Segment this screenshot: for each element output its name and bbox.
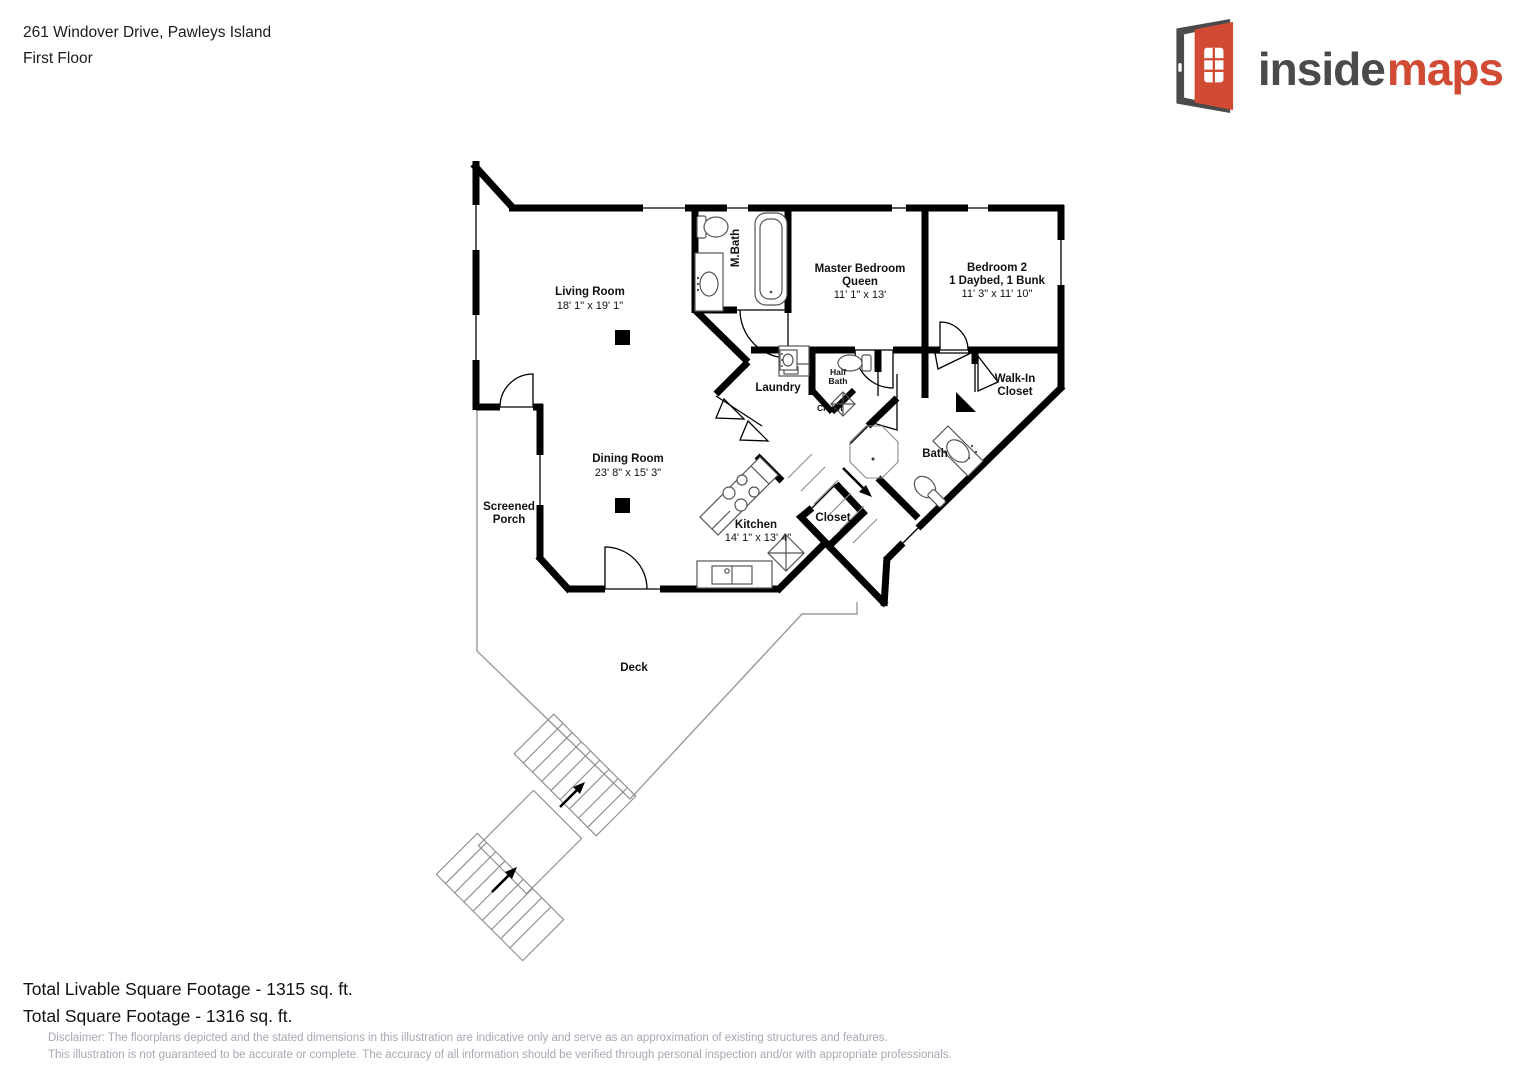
label-dining-dims: 23' 8" x 15' 3" — [595, 467, 662, 479]
floorplan-drawing: Living Room 18' 1" x 19' 1" Dining Room … — [0, 0, 1527, 1080]
label-master-sub: Queen — [842, 276, 878, 288]
total-sqft: Total Square Footage - 1316 sq. ft. — [23, 1003, 353, 1030]
label-walkin-1: Walk-In — [995, 373, 1035, 385]
label-closet-hall: Closet — [817, 403, 843, 413]
disclaimer-line-2: This illustration is not guaranteed to b… — [48, 1047, 952, 1064]
footer-totals: Total Livable Square Footage - 1315 sq. … — [23, 976, 353, 1029]
label-bedroom2: Bedroom 2 — [967, 262, 1027, 274]
label-living-dims: 18' 1" x 19' 1" — [557, 300, 624, 312]
label-kitchen: Kitchen — [735, 519, 777, 531]
label-dining-room: Dining Room — [592, 453, 664, 465]
label-bedroom2-dims: 11' 3" x 11' 10" — [962, 288, 1033, 300]
label-porch-2: Porch — [493, 514, 526, 526]
label-deck: Deck — [620, 662, 648, 674]
livable-sqft: Total Livable Square Footage - 1315 sq. … — [23, 976, 353, 1003]
label-master-dims: 11' 1" x 13' — [834, 289, 887, 301]
deck-stairs — [436, 714, 635, 960]
label-porch-1: Screened — [483, 501, 535, 513]
label-closet-kitchen: Closet — [815, 512, 850, 524]
label-master-bedroom: Master Bedroom — [815, 263, 906, 275]
disclaimer-line-1: Disclaimer: The floorplans depicted and … — [48, 1030, 952, 1047]
label-walkin-2: Closet — [997, 386, 1032, 398]
label-laundry: Laundry — [755, 382, 801, 394]
stairs-up-arrow-1 — [560, 782, 585, 807]
floorplan-page: 261 Windover Drive, Pawleys Island First… — [0, 0, 1527, 1080]
label-kitchen-dims: 14' 1" x 13' 4" — [725, 532, 792, 544]
disclaimer: Disclaimer: The floorplans depicted and … — [48, 1030, 952, 1063]
label-mbath: M.Bath — [730, 229, 742, 267]
label-living-room: Living Room — [555, 286, 625, 298]
label-halfbath-2: Bath — [829, 376, 848, 386]
label-bath: Bath — [922, 448, 948, 460]
label-bedroom2-sub: 1 Daybed, 1 Bunk — [949, 275, 1045, 287]
interior-stairs — [788, 454, 877, 543]
columns — [615, 330, 630, 513]
